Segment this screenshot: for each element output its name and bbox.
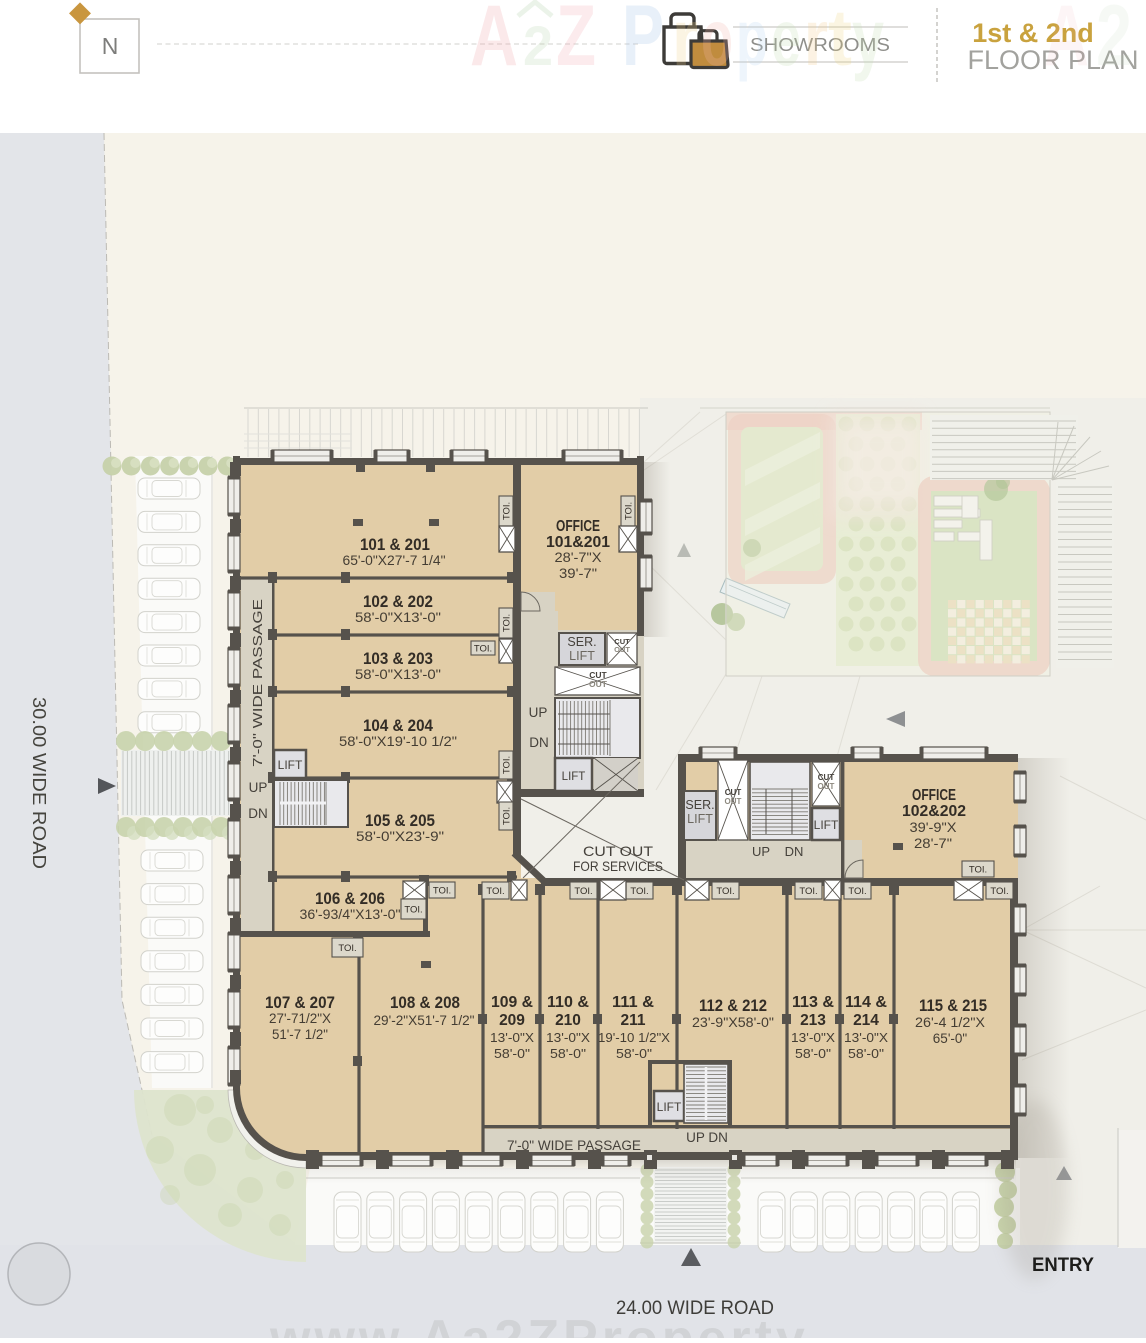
svg-text:51'-7 1/2": 51'-7 1/2" (272, 1027, 328, 1042)
svg-text:65'-0"X27'-7 1/4": 65'-0"X27'-7 1/4" (343, 553, 446, 568)
svg-text:102&202: 102&202 (902, 803, 966, 820)
svg-text:TOI.: TOI. (969, 865, 987, 876)
svg-text:FOR SERVICES: FOR SERVICES (573, 858, 663, 874)
svg-text:214: 214 (853, 1012, 879, 1029)
svg-text:13'-0"X: 13'-0"X (546, 1030, 590, 1045)
svg-text:LIFT: LIFT (687, 812, 713, 826)
svg-text:30.00 WIDE ROAD: 30.00 WIDE ROAD (29, 697, 49, 869)
svg-text:58'-0"X23'-9": 58'-0"X23'-9" (356, 829, 444, 844)
svg-text:211: 211 (620, 1012, 645, 1029)
svg-text:7'-0" WIDE PASSAGE: 7'-0" WIDE PASSAGE (250, 599, 265, 767)
svg-text:101&201: 101&201 (546, 534, 610, 551)
svg-text:y: y (852, 0, 884, 82)
svg-text:115 & 215: 115 & 215 (919, 997, 987, 1015)
svg-text:TOI.: TOI. (486, 886, 504, 897)
svg-text:TOI.: TOI. (502, 756, 513, 774)
svg-text:N: N (102, 33, 119, 59)
svg-text:UP: UP (529, 705, 548, 720)
svg-text:TOI.: TOI. (990, 886, 1008, 897)
svg-text:36'-93/4"X13'-0": 36'-93/4"X13'-0" (300, 907, 401, 922)
svg-text:213: 213 (800, 1012, 826, 1029)
svg-text:113 &: 113 & (792, 994, 834, 1011)
svg-text:58'-0": 58'-0" (795, 1046, 831, 1061)
svg-text:TOI.: TOI. (502, 614, 513, 632)
svg-text:P: P (622, 0, 664, 84)
svg-text:210: 210 (555, 1012, 581, 1029)
svg-text:UP DN: UP DN (686, 1130, 728, 1145)
svg-text:28'-7": 28'-7" (914, 836, 952, 851)
svg-text:SER.: SER. (685, 798, 714, 812)
svg-text:58'-0"X19'-10 1/2": 58'-0"X19'-10 1/2" (339, 734, 457, 749)
svg-text:106 & 206: 106 & 206 (315, 890, 385, 908)
svg-text:104 & 204: 104 & 204 (363, 717, 434, 735)
svg-text:109 &: 109 & (491, 994, 533, 1011)
svg-text:TOI.: TOI. (474, 644, 492, 655)
svg-text:108 & 208: 108 & 208 (390, 994, 460, 1012)
svg-text:19'-10 1/2"X: 19'-10 1/2"X (598, 1030, 670, 1045)
svg-text:CUT: CUT (818, 773, 835, 782)
svg-text:A: A (1044, 0, 1089, 84)
svg-text:103 & 203: 103 & 203 (363, 650, 433, 668)
svg-text:DN: DN (529, 735, 549, 750)
svg-text:r: r (804, 0, 828, 82)
svg-text:58'-0"X13'-0": 58'-0"X13'-0" (355, 667, 441, 682)
svg-text:39'-7": 39'-7" (559, 566, 597, 581)
svg-text:111 &: 111 & (612, 994, 654, 1011)
svg-text:58'-0": 58'-0" (550, 1046, 586, 1061)
svg-text:CUT OUT: CUT OUT (583, 843, 653, 859)
svg-text:DN: DN (248, 806, 268, 821)
svg-text:TOI.: TOI. (630, 886, 648, 897)
svg-text:23'-9"X58'-0": 23'-9"X58'-0" (692, 1015, 774, 1030)
svg-text:LIFT: LIFT (657, 1100, 682, 1114)
svg-text:TOI.: TOI. (624, 502, 635, 520)
svg-text:TOI.: TOI. (848, 886, 866, 897)
svg-text:DN: DN (785, 844, 804, 859)
svg-text:OUT: OUT (589, 679, 608, 689)
svg-text:107 & 207: 107 & 207 (265, 994, 335, 1012)
svg-text:TOI.: TOI. (574, 886, 592, 897)
svg-text:TOI.: TOI. (502, 502, 513, 520)
svg-text:LIFT: LIFT (569, 649, 595, 663)
svg-text:TOI.: TOI. (404, 905, 422, 916)
svg-text:o: o (701, 0, 733, 82)
svg-text:LIFT: LIFT (278, 758, 303, 772)
svg-text:28'-7"X: 28'-7"X (555, 550, 602, 565)
svg-text:SER.: SER. (567, 635, 596, 649)
svg-text:209: 209 (499, 1012, 525, 1029)
svg-text:ENTRY: ENTRY (1032, 1255, 1094, 1276)
svg-text:TOI.: TOI. (433, 886, 451, 897)
svg-text:7'-0" WIDE PASSAGE: 7'-0" WIDE PASSAGE (507, 1138, 641, 1153)
svg-text:LIFT: LIFT (814, 818, 839, 832)
svg-text:www.Aa2ZProperty: www.Aa2ZProperty (269, 1310, 809, 1338)
svg-text:OUT: OUT (818, 782, 835, 791)
svg-text:26'-4 1/2"X: 26'-4 1/2"X (915, 1015, 985, 1030)
svg-text:58'-0": 58'-0" (848, 1046, 884, 1061)
svg-text:58'-0"X13'-0": 58'-0"X13'-0" (355, 610, 441, 625)
svg-text:27'-71/2"X: 27'-71/2"X (269, 1011, 331, 1026)
svg-text:13'-0"X: 13'-0"X (844, 1030, 888, 1045)
svg-text:39'-9"X: 39'-9"X (910, 820, 957, 835)
svg-text:29'-2"X51'-7 1/2": 29'-2"X51'-7 1/2" (374, 1013, 475, 1028)
svg-text:Z: Z (556, 0, 596, 84)
svg-text:58'-0": 58'-0" (616, 1046, 652, 1061)
svg-text:TOI.: TOI. (338, 943, 356, 954)
svg-text:TOI.: TOI. (716, 886, 734, 897)
svg-text:OFFICE: OFFICE (912, 787, 956, 804)
svg-text:105 & 205: 105 & 205 (365, 812, 435, 830)
svg-text:OUT: OUT (725, 797, 742, 806)
svg-text:2: 2 (523, 14, 553, 77)
svg-text:112 & 212: 112 & 212 (699, 997, 767, 1015)
svg-text:CUT: CUT (725, 788, 742, 797)
svg-text:r: r (672, 0, 698, 82)
svg-text:t: t (828, 0, 852, 82)
svg-text:LIFT: LIFT (562, 771, 586, 783)
svg-text:TOI.: TOI. (799, 886, 817, 897)
svg-text:OUT: OUT (614, 645, 630, 654)
svg-text:102 & 202: 102 & 202 (363, 593, 433, 611)
svg-text:114 &: 114 & (845, 994, 887, 1011)
svg-text:110 &: 110 & (547, 994, 589, 1011)
svg-text:13'-0"X: 13'-0"X (490, 1030, 534, 1045)
svg-text:65'-0": 65'-0" (933, 1031, 968, 1046)
svg-text:p: p (736, 0, 768, 82)
svg-text:TOI.: TOI. (502, 807, 513, 825)
svg-text:OFFICE: OFFICE (556, 518, 600, 535)
svg-text:58'-0": 58'-0" (494, 1046, 530, 1061)
svg-text:2: 2 (1096, 0, 1132, 84)
svg-text:e: e (771, 0, 801, 82)
svg-text:101 & 201: 101 & 201 (360, 536, 430, 554)
svg-text:UP: UP (752, 844, 770, 859)
svg-text:A: A (470, 0, 518, 84)
svg-text:UP: UP (249, 780, 268, 795)
svg-text:13'-0"X: 13'-0"X (791, 1030, 835, 1045)
